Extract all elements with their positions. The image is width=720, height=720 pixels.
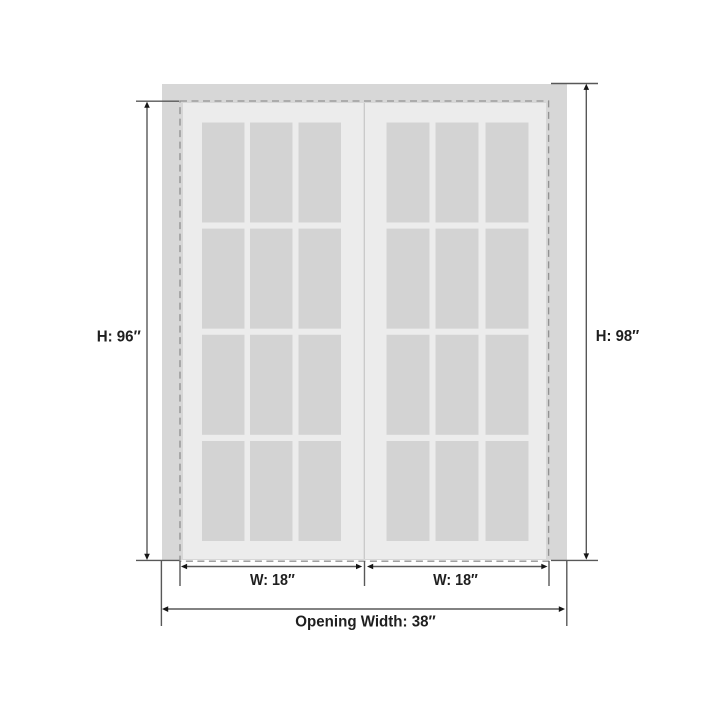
svg-text:Opening Width: 38″: Opening Width: 38″ bbox=[295, 613, 436, 630]
svg-text:H: 98″: H: 98″ bbox=[596, 328, 640, 345]
svg-text:W: 18″: W: 18″ bbox=[433, 572, 478, 589]
svg-text:H: 96″: H: 96″ bbox=[97, 328, 142, 345]
svg-text:W: 18″: W: 18″ bbox=[250, 572, 295, 589]
